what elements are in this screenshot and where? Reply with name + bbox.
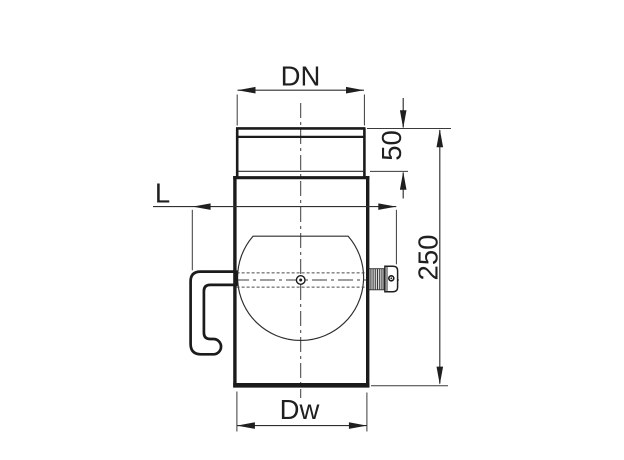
operating-handle <box>191 272 237 355</box>
dn-arrow-right <box>346 87 364 94</box>
dw-arrow-left <box>237 422 255 429</box>
dim-overall-length: 250 <box>371 129 448 386</box>
length-arrow-down <box>437 367 444 385</box>
flue-damper-technical-drawing: DN 50 L 250 Dw <box>0 0 624 460</box>
dw-label: Dw <box>280 394 320 425</box>
pivot-rivet <box>296 276 305 285</box>
l-arrow-left <box>193 203 211 210</box>
drawing-canvas: DN 50 L 250 Dw <box>0 0 624 460</box>
depth-label: 50 <box>376 130 407 161</box>
l-arrow-right <box>378 203 396 210</box>
locking-screw <box>369 266 398 291</box>
length-arrow-up <box>437 129 444 147</box>
depth-arrow-up <box>400 172 407 190</box>
l-label: L <box>155 178 170 209</box>
screw-head-hole-dot <box>390 277 392 279</box>
depth-arrow-down <box>400 110 407 128</box>
dim-socket-depth: 50 <box>367 98 451 199</box>
length-label: 250 <box>412 235 443 281</box>
dw-arrow-right <box>349 422 367 429</box>
dn-arrow-left <box>238 87 256 94</box>
dim-dw: Dw <box>237 392 367 432</box>
dn-label: DN <box>281 61 321 92</box>
screw-thread-hatch <box>371 269 384 290</box>
pivot-center-dot <box>299 279 302 282</box>
